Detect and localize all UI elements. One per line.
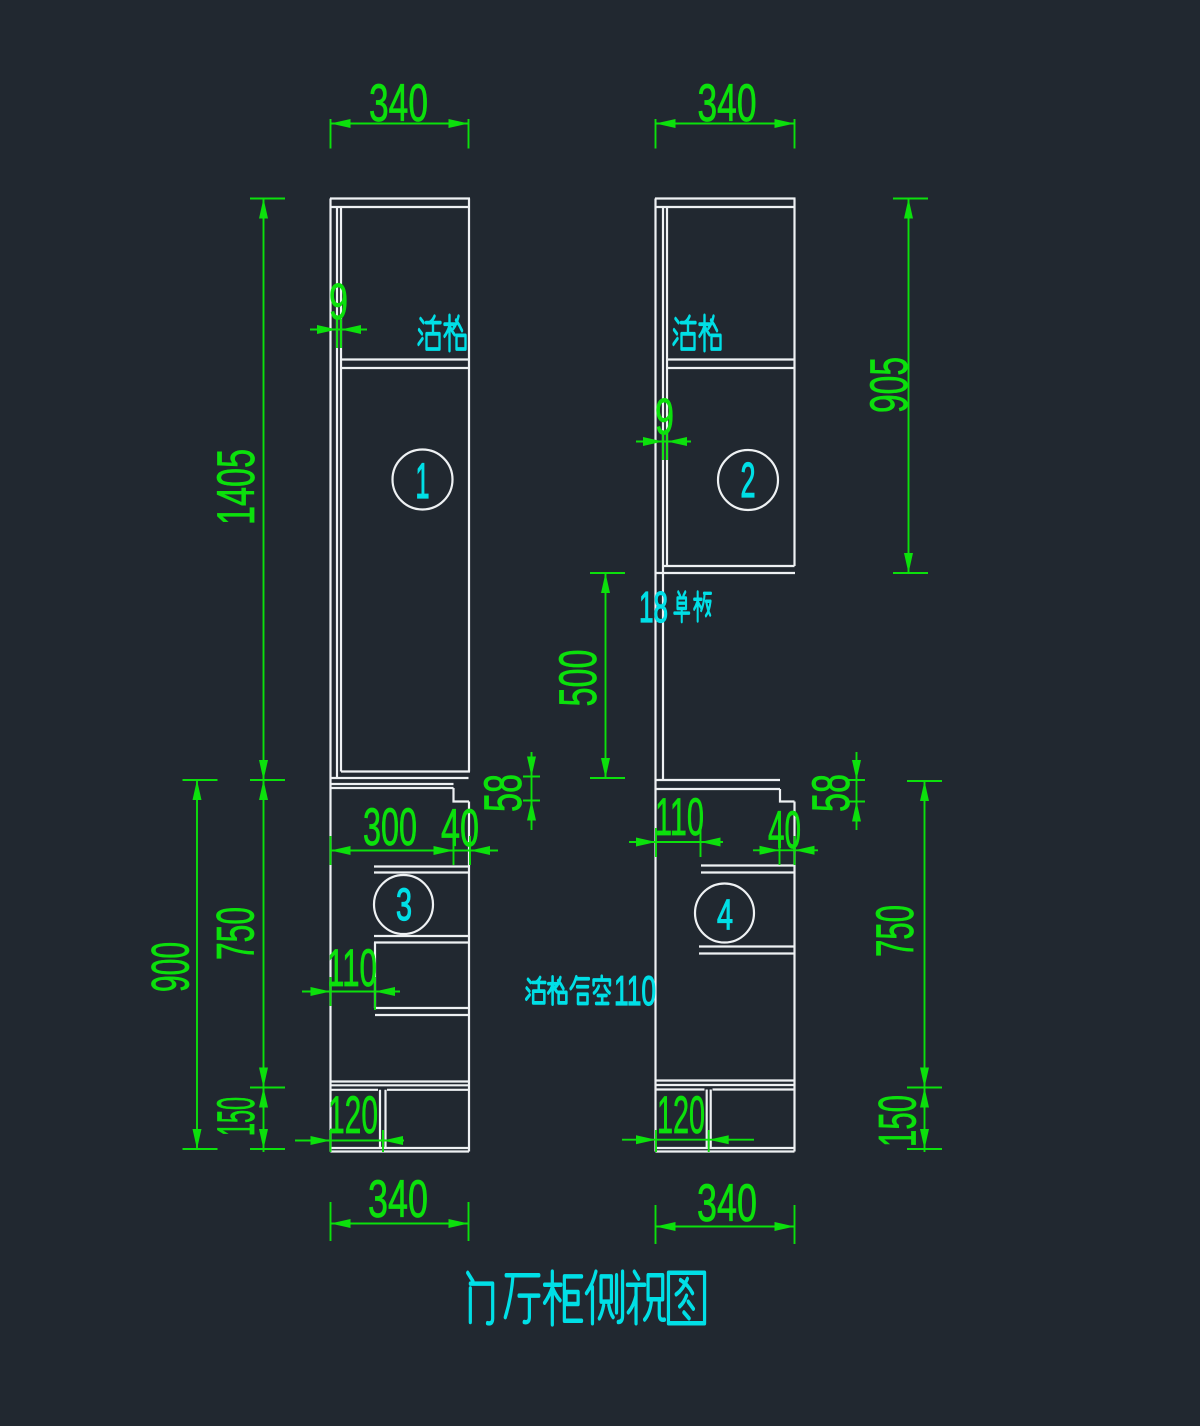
svg-text:110: 110 bbox=[614, 967, 656, 1014]
svg-text:500: 500 bbox=[549, 650, 608, 707]
svg-text:750: 750 bbox=[207, 907, 266, 960]
svg-text:40: 40 bbox=[441, 799, 479, 858]
svg-text:9: 9 bbox=[329, 273, 348, 330]
svg-text:9: 9 bbox=[655, 388, 674, 445]
svg-text:18: 18 bbox=[639, 583, 668, 632]
svg-text:58: 58 bbox=[802, 774, 861, 812]
svg-text:340: 340 bbox=[698, 74, 757, 133]
svg-text:300: 300 bbox=[363, 798, 417, 857]
svg-text:120: 120 bbox=[657, 1086, 705, 1145]
svg-text:340: 340 bbox=[697, 1174, 757, 1233]
svg-text:340: 340 bbox=[368, 1170, 428, 1229]
svg-text:3: 3 bbox=[396, 879, 412, 930]
svg-text:120: 120 bbox=[328, 1086, 378, 1145]
svg-text:4: 4 bbox=[717, 891, 733, 939]
svg-text:58: 58 bbox=[474, 774, 533, 812]
svg-text:1405: 1405 bbox=[207, 449, 266, 525]
svg-text:150: 150 bbox=[869, 1095, 928, 1147]
svg-text:2: 2 bbox=[741, 454, 756, 508]
svg-text:40: 40 bbox=[768, 801, 801, 860]
svg-text:110: 110 bbox=[327, 939, 377, 998]
svg-text:905: 905 bbox=[860, 357, 919, 413]
svg-text:1: 1 bbox=[416, 453, 430, 509]
svg-text:110: 110 bbox=[655, 788, 704, 847]
svg-text:750: 750 bbox=[866, 905, 925, 957]
svg-text:150: 150 bbox=[207, 1097, 266, 1136]
svg-text:900: 900 bbox=[142, 942, 201, 992]
svg-text:340: 340 bbox=[369, 74, 428, 133]
